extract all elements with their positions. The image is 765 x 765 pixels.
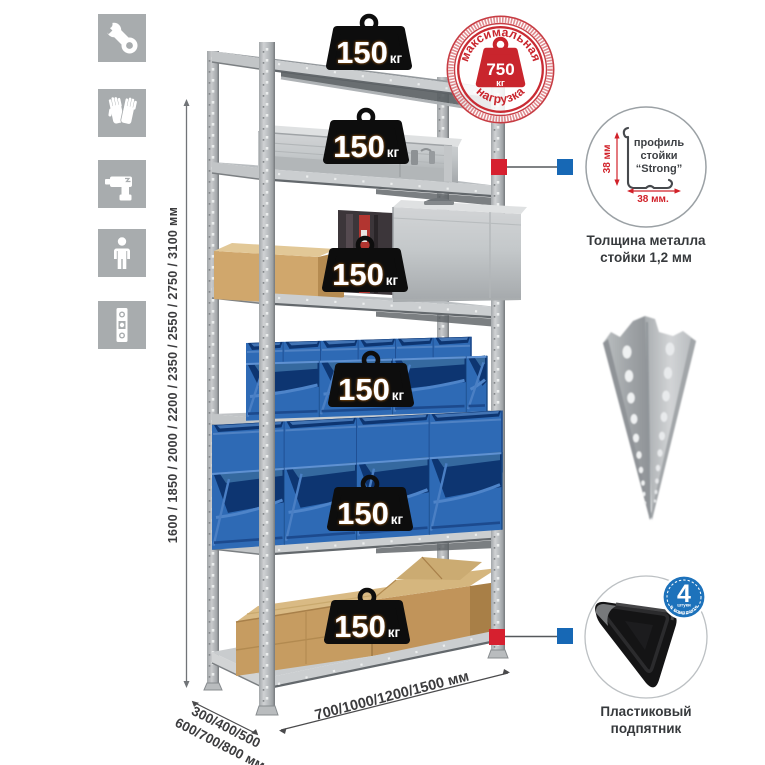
svg-text:кг: кг: [391, 512, 404, 527]
svg-text:“Strong”: “Strong”: [636, 163, 682, 175]
svg-text:150: 150: [334, 609, 386, 644]
svg-text:стойки 1,2 мм: стойки 1,2 мм: [600, 250, 692, 265]
svg-text:38 мм: 38 мм: [602, 145, 613, 174]
svg-text:150: 150: [332, 257, 384, 292]
svg-text:Толщина металла: Толщина металла: [586, 233, 706, 248]
svg-text:кг: кг: [390, 51, 403, 66]
svg-text:Пластиковый: Пластиковый: [600, 704, 691, 719]
svg-text:38 мм.: 38 мм.: [637, 194, 669, 205]
svg-text:700/1000/1200/1500 мм: 700/1000/1200/1500 мм: [313, 669, 470, 724]
svg-text:кг: кг: [386, 273, 399, 288]
svg-text:150: 150: [333, 129, 385, 164]
svg-text:штуки: штуки: [677, 603, 691, 608]
svg-text:стойки: стойки: [640, 150, 677, 162]
svg-text:150: 150: [338, 372, 390, 407]
svg-text:кг: кг: [392, 388, 405, 403]
svg-text:150: 150: [337, 496, 389, 531]
svg-text:кг: кг: [496, 78, 505, 89]
svg-text:750: 750: [486, 60, 514, 79]
svg-text:подпятник: подпятник: [611, 721, 682, 736]
svg-text:кг: кг: [387, 145, 400, 160]
svg-text:150: 150: [336, 35, 388, 70]
svg-text:кг: кг: [388, 625, 401, 640]
svg-text:1600 / 1850 / 2000 / 2200 / 23: 1600 / 1850 / 2000 / 2200 / 2350 / 2550 …: [166, 207, 180, 544]
svg-text:профиль: профиль: [634, 137, 684, 149]
